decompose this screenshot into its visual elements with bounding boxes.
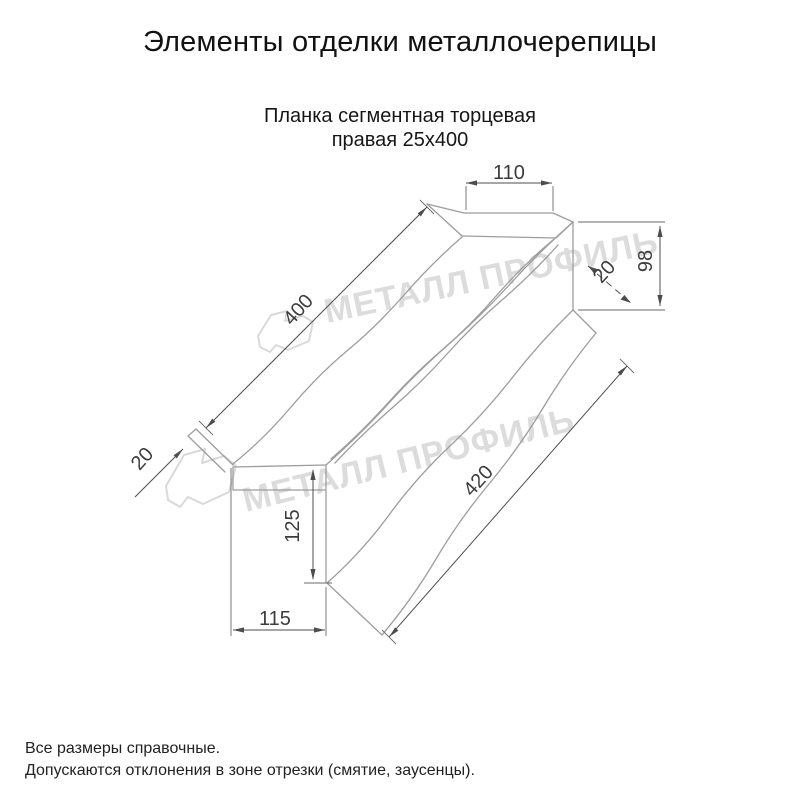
notes: Все размеры справочные. Допускаются откл… <box>25 738 475 782</box>
arrow-icon <box>657 295 662 306</box>
dim-20-bottom-label: 20 <box>127 443 158 474</box>
arrow-icon <box>310 569 315 580</box>
dim-98-label: 98 <box>635 250 657 272</box>
part-edge <box>553 213 573 222</box>
part-hem-edge <box>188 429 196 436</box>
dimension-400: 400 <box>199 200 434 435</box>
dim-125-label: 125 <box>282 509 304 542</box>
dim-115-label: 115 <box>259 608 291 630</box>
note-line2: Допускаются отклонения в зоне отрезки (с… <box>25 760 475 782</box>
arrow-icon <box>541 180 552 185</box>
part-hem-edge <box>188 436 225 472</box>
watermark-group-1: МЕТАЛЛ ПРОФИЛЬ <box>258 223 662 352</box>
arrow-icon <box>314 627 325 632</box>
watermark-text: МЕТАЛЛ ПРОФИЛЬ <box>239 400 579 519</box>
note-line1: Все размеры справочные. <box>25 738 475 760</box>
arrow-icon <box>233 627 244 632</box>
arrow-icon <box>466 180 477 185</box>
dimension-420: 420 <box>382 359 634 644</box>
dim-420-label: 420 <box>459 461 498 501</box>
technical-drawing: МЕТАЛЛ ПРОФИЛЬ МЕТАЛЛ ПРОФИЛЬ <box>0 0 800 800</box>
part-edge <box>462 236 556 238</box>
dim-110-label: 110 <box>493 162 525 184</box>
arrow-icon <box>618 366 627 376</box>
part-edge <box>573 310 596 333</box>
arrow-icon <box>621 295 632 303</box>
arrow-icon <box>657 226 662 237</box>
part-edge <box>327 583 382 635</box>
arrow-icon <box>389 627 398 637</box>
dimension-110: 110 <box>466 162 553 211</box>
